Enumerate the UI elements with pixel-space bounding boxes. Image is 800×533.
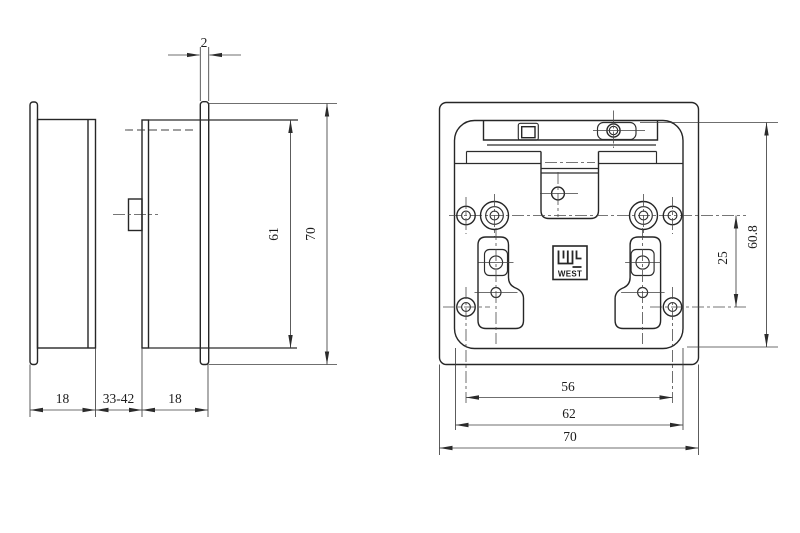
logo-text: WEST (558, 270, 582, 279)
dim-front-depth-label: 18 (168, 391, 182, 406)
dim-hole-pitch-label: 25 (715, 251, 730, 265)
dim-rear-depth-label: 18 (56, 391, 70, 406)
arrowhead (440, 446, 453, 450)
dim-hole-span-label: 56 (561, 379, 575, 394)
west-logo: WEST (553, 246, 587, 280)
rear-body-profile (38, 120, 96, 349)
clamp-slot-left (478, 237, 524, 329)
arrowhead (195, 408, 208, 412)
front-bezel-profile (200, 102, 208, 365)
clamp-slot-right (615, 237, 661, 329)
arrowhead (734, 216, 738, 229)
dim-inner-width-label: 62 (562, 406, 576, 421)
arrowhead (129, 408, 142, 412)
arrowhead (187, 53, 200, 57)
arrowhead (209, 53, 222, 57)
arrowhead (734, 294, 738, 307)
arrowhead (466, 395, 479, 399)
case-outline (455, 121, 684, 349)
side-view: 2 61 70 18 33-42 18 (30, 35, 337, 417)
dim-inner-height-label: 61 (266, 227, 281, 241)
arrowhead (660, 395, 673, 399)
arrowhead (686, 446, 699, 450)
arrowhead (288, 120, 292, 133)
dim-overall-width-label: 70 (563, 429, 577, 444)
dim-inner-height-label: 60.8 (745, 225, 760, 249)
arrowhead (83, 408, 96, 412)
drawing-sheet: 2 61 70 18 33-42 18 (0, 0, 800, 533)
rear-view: WEST 60.8 25 56 62 70 (440, 103, 779, 456)
arrowhead (764, 334, 768, 347)
dim-overall-height-label: 70 (303, 227, 318, 241)
dim-panel-range-label: 33-42 (103, 391, 135, 406)
rear-flange-profile (30, 102, 38, 365)
arrowhead (96, 408, 109, 412)
center-tab (541, 152, 599, 219)
dim-flange-thickness-label: 2 (201, 35, 208, 50)
arrowhead (30, 408, 43, 412)
arrowhead (325, 104, 329, 117)
arrowhead (456, 423, 469, 427)
latch-square-hole (522, 127, 535, 138)
arrowhead (670, 423, 683, 427)
arrowhead (288, 335, 292, 348)
technical-drawing: 2 61 70 18 33-42 18 (0, 0, 800, 533)
arrowhead (325, 352, 329, 365)
arrowhead (142, 408, 155, 412)
logo-w-glyph (559, 251, 582, 268)
mounting-bracket-profile (142, 120, 149, 348)
arrowhead (764, 123, 768, 136)
